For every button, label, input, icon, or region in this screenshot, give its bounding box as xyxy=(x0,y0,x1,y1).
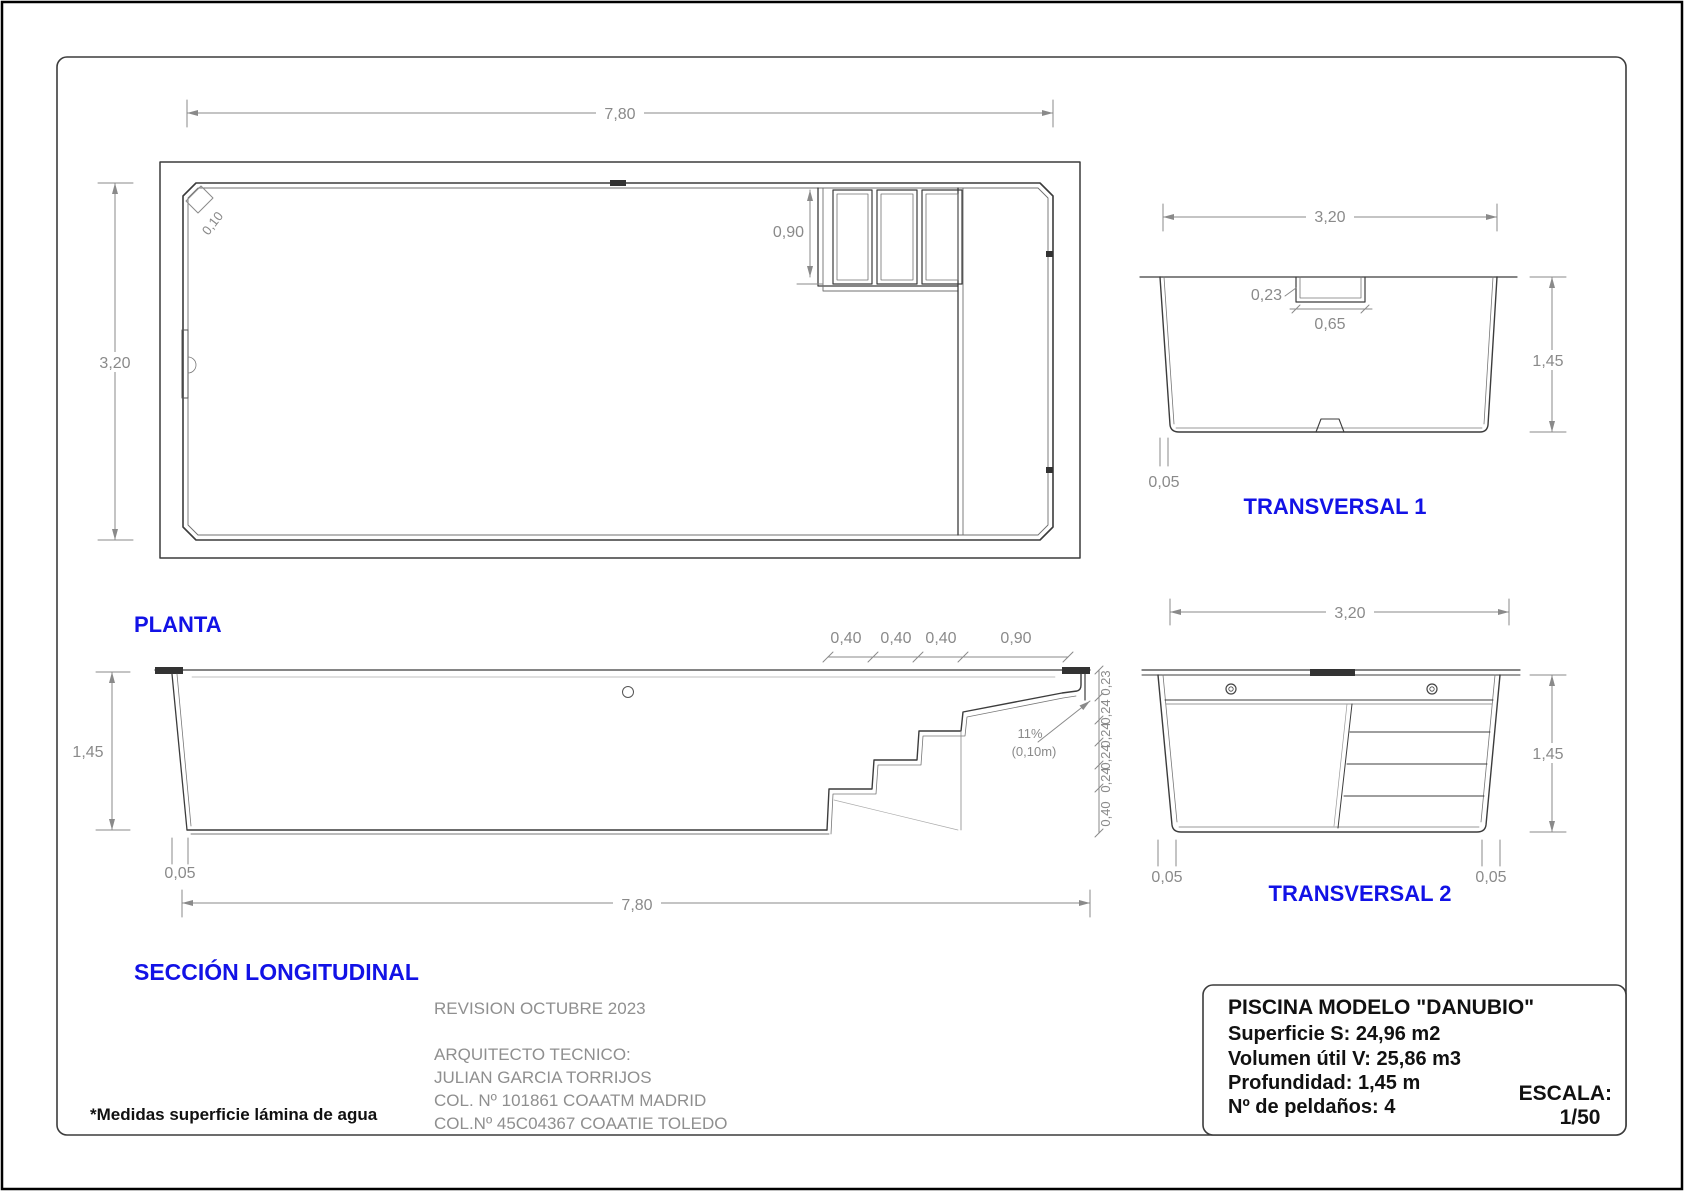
anchor-mark xyxy=(1229,687,1233,691)
planta-title: PLANTA xyxy=(134,612,222,637)
jet-mark xyxy=(1046,467,1053,473)
scale-value: 1/50 xyxy=(1560,1106,1601,1129)
long-dim-riser: 0,24 xyxy=(1098,722,1113,747)
t2-dim-wall-right: 0,05 xyxy=(1475,869,1506,886)
long-dim-riser: 0,23 xyxy=(1098,670,1113,695)
planta-view: 7,80 3,20 0,90 0,10 PLANTA xyxy=(91,100,1080,637)
t1-dim-width: 3,20 xyxy=(1314,209,1345,226)
longitudinal-title: SECCIÓN LONGITUDINAL xyxy=(134,958,419,985)
t1-dim-recess-depth: 0,23 xyxy=(1251,287,1282,304)
college-number-2: COL.Nº 45C04367 COAATIE TOLEDO xyxy=(434,1114,727,1133)
long-dim-riser: 0,24 xyxy=(1098,767,1113,792)
anchor-mark xyxy=(1427,684,1437,694)
long-slope-note-2: (0,10m) xyxy=(1012,744,1057,759)
longitudinal-dimensions xyxy=(96,652,1103,917)
architect-label: ARQUITECTO TECNICO: xyxy=(434,1045,631,1064)
long-dim-depth: 1,45 xyxy=(72,744,103,761)
skimmer-mark xyxy=(610,180,626,186)
long-dim-tread2: 0,40 xyxy=(880,630,911,647)
long-slope-note-1: 11% xyxy=(1017,726,1042,741)
coping-mark xyxy=(1310,669,1355,676)
drawing-sheet: 7,80 3,20 0,90 0,10 PLANTA xyxy=(0,0,1684,1191)
planta-fittings xyxy=(610,180,1053,473)
measures-note: *Medidas superficie lámina de agua xyxy=(90,1105,378,1124)
anchor-mark xyxy=(1226,684,1236,694)
planta-dim-corner: 0,10 xyxy=(199,209,226,238)
model-name: PISCINA MODELO "DANUBIO" xyxy=(1228,996,1534,1019)
long-dim-riser: 0,24 xyxy=(1098,744,1113,769)
t1-dim-recess-width: 0,65 xyxy=(1314,316,1345,333)
transversal1-title: TRANSVERSAL 1 xyxy=(1244,494,1427,519)
t1-dim-wall: 0,05 xyxy=(1148,474,1179,491)
volume-value: Volumen útil V: 25,86 m3 xyxy=(1228,1048,1461,1070)
long-dim-riser: 0,24 xyxy=(1098,699,1113,724)
long-dim-tread1: 0,40 xyxy=(830,630,861,647)
planta-dimensions xyxy=(98,100,1053,540)
architect-name: JULIAN GARCIA TORRIJOS xyxy=(434,1068,652,1087)
planta-dim-height: 3,20 xyxy=(99,355,130,372)
coping-end xyxy=(155,667,183,674)
jet-mark xyxy=(1046,251,1053,257)
notes-block: REVISION OCTUBRE 2023 ARQUITECTO TECNICO… xyxy=(90,999,727,1133)
transversal2-title: TRANSVERSAL 2 xyxy=(1269,881,1452,906)
longitudinal-shape xyxy=(155,667,1090,834)
long-dim-tread4: 0,90 xyxy=(1000,630,1031,647)
t1-dim-depth: 1,45 xyxy=(1532,353,1563,370)
long-dim-tread3: 0,40 xyxy=(925,630,956,647)
title-block: PISCINA MODELO "DANUBIO" Superficie S: 2… xyxy=(1203,985,1626,1135)
transversal1-shape xyxy=(1140,277,1517,432)
long-dim-length: 7,80 xyxy=(621,897,652,914)
scale-label: ESCALA: xyxy=(1519,1082,1612,1105)
long-dim-wall: 0,05 xyxy=(164,865,195,882)
long-dim-riser: 0,40 xyxy=(1098,801,1113,826)
t2-dim-depth: 1,45 xyxy=(1532,746,1563,763)
transversal2-view: 3,20 1,45 0,05 0,05 TRANSVERSAL 2 xyxy=(1142,599,1572,906)
transversal1-dimensions xyxy=(1160,204,1566,466)
depth-value: Profundidad: 1,45 m xyxy=(1228,1072,1420,1094)
planta-dim-width: 7,80 xyxy=(604,106,635,123)
transversal2-shape xyxy=(1142,669,1520,832)
transversal1-view: 3,20 0,23 0,65 1,45 0,05 TRANSVERSAL 1 xyxy=(1140,204,1572,519)
coping-end xyxy=(1062,667,1090,674)
longitudinal-view: 0,40 0,40 0,40 0,90 0,23 0,24 0,24 0,24 … xyxy=(72,630,1113,985)
surface-value: Superficie S: 24,96 m2 xyxy=(1228,1023,1440,1045)
t2-dim-width: 3,20 xyxy=(1334,605,1365,622)
drawing-canvas: 7,80 3,20 0,90 0,10 PLANTA xyxy=(0,0,1684,1191)
anchor-mark xyxy=(1430,687,1434,691)
revision-note: REVISION OCTUBRE 2023 xyxy=(434,999,646,1018)
drain-mark xyxy=(623,687,634,698)
steps-count: Nº de peldaños: 4 xyxy=(1228,1096,1396,1118)
planta-walls xyxy=(160,162,1080,558)
t2-dim-wall-left: 0,05 xyxy=(1151,869,1182,886)
college-number-1: COL. Nº 101861 COAATM MADRID xyxy=(434,1091,706,1110)
planta-dim-steps-depth: 0,90 xyxy=(773,224,804,241)
